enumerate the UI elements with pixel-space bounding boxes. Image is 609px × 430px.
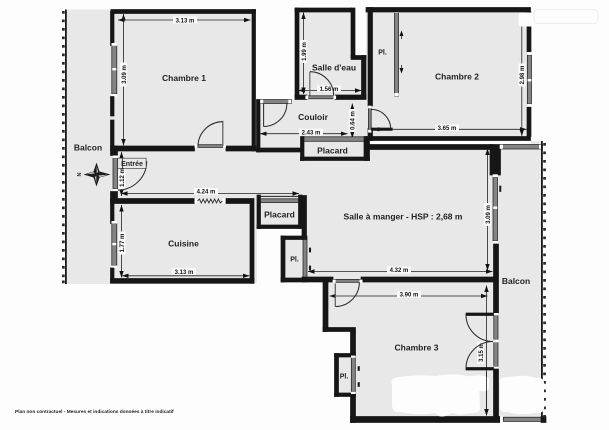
svg-text:Cuisine: Cuisine xyxy=(168,239,199,249)
svg-text:Balcon: Balcon xyxy=(502,276,530,286)
svg-text:3.13 m: 3.13 m xyxy=(175,270,194,276)
svg-text:Plan non contractuel - Mesures: Plan non contractuel - Mesures et indica… xyxy=(15,409,174,415)
svg-text:1.56 m: 1.56 m xyxy=(320,87,339,93)
svg-text:1.99 m: 1.99 m xyxy=(302,42,308,61)
svg-text:4.32 m: 4.32 m xyxy=(390,268,409,274)
svg-text:2.43 m: 2.43 m xyxy=(302,130,321,136)
svg-text:3.13 m: 3.13 m xyxy=(176,18,195,24)
svg-text:Balcon: Balcon xyxy=(74,143,102,153)
svg-text:Chambre 3: Chambre 3 xyxy=(395,343,439,353)
svg-text:Salle à manger - HSP : 2,68 m: Salle à manger - HSP : 2,68 m xyxy=(344,212,463,222)
svg-text:3.09 m: 3.09 m xyxy=(122,65,128,84)
svg-text:2.98 m: 2.98 m xyxy=(520,66,526,85)
svg-text:0.64 m: 0.64 m xyxy=(351,111,357,130)
svg-text:Placard: Placard xyxy=(317,146,348,156)
svg-text:Pl.: Pl. xyxy=(340,374,349,381)
svg-text:3.09 m: 3.09 m xyxy=(486,205,492,224)
svg-text:4.24 m: 4.24 m xyxy=(197,190,216,196)
svg-text:Couloir: Couloir xyxy=(298,112,328,122)
svg-text:N: N xyxy=(77,172,83,176)
svg-text:Chambre 2: Chambre 2 xyxy=(435,72,479,82)
svg-text:3.90 m: 3.90 m xyxy=(400,293,419,299)
svg-text:Placard: Placard xyxy=(264,210,295,220)
svg-text:3.15 m: 3.15 m xyxy=(479,343,485,362)
svg-text:1.77 m: 1.77 m xyxy=(120,234,126,253)
svg-text:Chambre 1: Chambre 1 xyxy=(162,73,206,83)
svg-text:Pl.: Pl. xyxy=(290,257,299,264)
svg-text:3.65 m: 3.65 m xyxy=(438,126,457,132)
svg-text:Pl.: Pl. xyxy=(378,50,387,57)
svg-text:Entrée: Entrée xyxy=(121,161,143,168)
svg-text:1.12 m: 1.12 m xyxy=(120,168,126,187)
svg-text:Salle d'eau: Salle d'eau xyxy=(312,63,356,73)
